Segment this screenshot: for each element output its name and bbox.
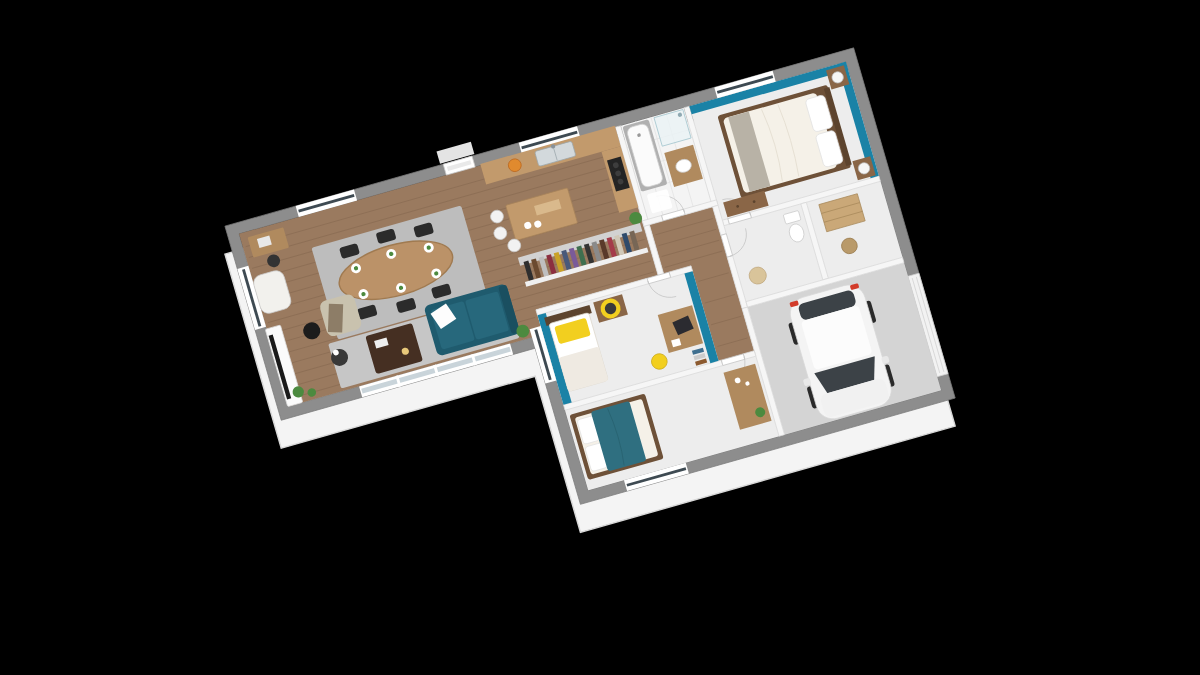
- floorplan-3d-render: [0, 0, 1200, 675]
- round-yellow-mirror: [601, 299, 620, 318]
- throw-blanket: [328, 304, 343, 333]
- screenshot-canvas: [0, 0, 1200, 675]
